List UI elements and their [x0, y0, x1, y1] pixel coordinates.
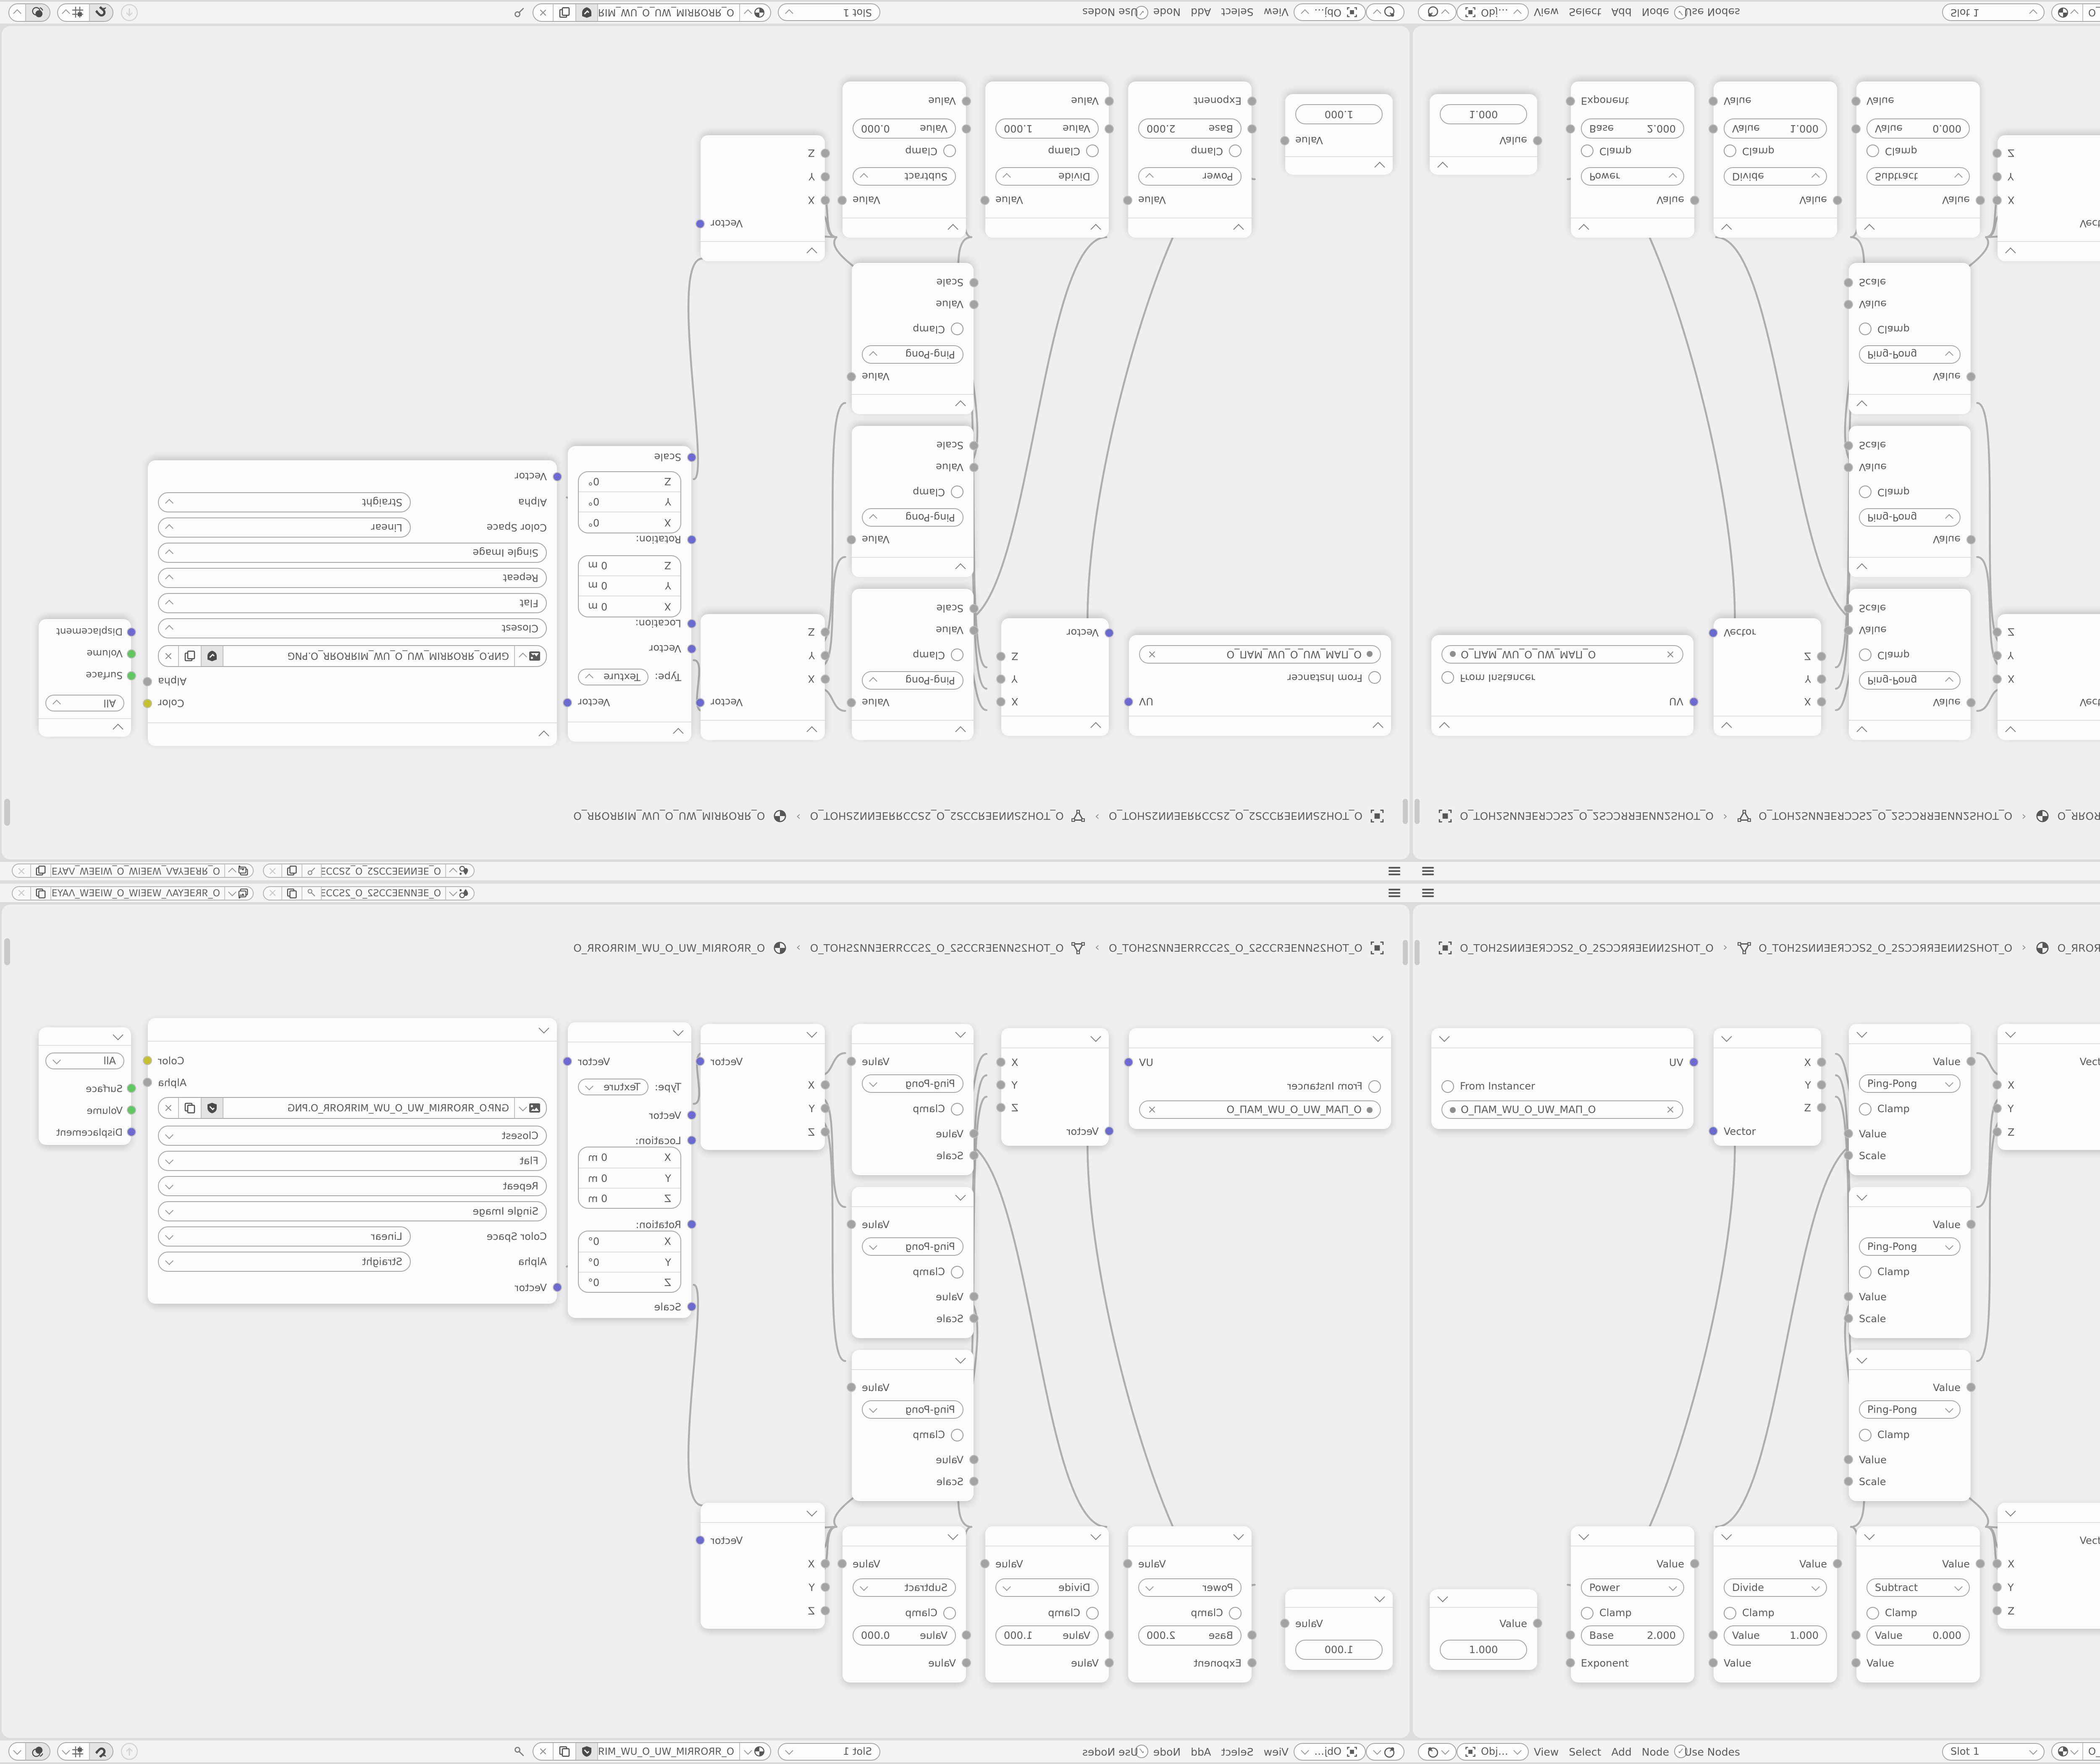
node-collapse-button[interactable] [1849, 1350, 1971, 1370]
node-collapse-button[interactable] [985, 218, 1109, 238]
breadcrumb-material[interactable]: O_ЯROЯRIM_WU_O_UW_MIЯROЯR_O [573, 941, 765, 954]
node-separate-xyz[interactable]: X Y Z Vector [1001, 618, 1109, 736]
menu-node[interactable]: Node [1148, 6, 1186, 19]
node-separate-xyz[interactable]: X Y Z Vector [1001, 1028, 1109, 1146]
z-input-socket[interactable] [1992, 149, 2002, 158]
number-field[interactable]: Base 2.000 [1581, 118, 1684, 139]
material-name-field[interactable]: O_ЯROЯRIM_WU_O_UW_MIЯROЯR_O [598, 4, 740, 21]
scale-input-socket[interactable] [1844, 278, 1853, 287]
operation-dropdown[interactable]: Power [1581, 167, 1684, 186]
value-input-socket[interactable] [1844, 1455, 1853, 1464]
x-output-socket[interactable] [1817, 1058, 1826, 1067]
remove-view-layer-button[interactable]: × [13, 865, 31, 877]
node-combine-xyz-top[interactable]: Vector X Y Z [701, 614, 825, 740]
node-math-pingpong-2[interactable]: Value Ping-Pong Clamp Value Scale [1849, 1187, 1971, 1338]
clamp-checkbox[interactable] [1859, 649, 1872, 661]
node-math-pingpong-3[interactable]: Value Ping-Pong Clamp Value Scale [852, 1350, 974, 1501]
new-material-button[interactable] [554, 1743, 576, 1760]
view-layer-browse-button[interactable] [225, 865, 253, 877]
breadcrumb-material[interactable]: O_ЯROЯRIM_WU_O_UW_MIЯROЯR_O [2058, 810, 2100, 823]
value-input-socket[interactable] [969, 300, 979, 309]
clamp-checkbox[interactable] [1724, 145, 1736, 157]
y-input-socket[interactable] [821, 651, 830, 660]
location-xyz-fields[interactable]: X0 m Y0 m Z0 m [578, 1147, 681, 1209]
breadcrumb-mesh[interactable]: O_TOH2SИИƎEЯƆƆS2_O_2SƆƆЯЯƎEИИ2SHOT_O [1759, 810, 2012, 823]
unlink-image-button[interactable]: × [159, 1098, 179, 1118]
rotation-y-field[interactable]: Y0° [579, 492, 680, 512]
uv-output-socket[interactable] [1124, 1058, 1133, 1067]
node-math-pingpong-3[interactable]: Value Ping-Pong Clamp Value Scale [852, 263, 974, 414]
new-scene-button[interactable] [282, 865, 302, 877]
uv-map-name-field[interactable]: O_ΠAM_WU_O_UW_MAΠ_O × [1139, 1100, 1381, 1119]
value-output-socket[interactable] [1280, 136, 1289, 145]
number-field[interactable]: Value 0.000 [1866, 118, 1970, 139]
value-input-socket[interactable] [1844, 300, 1853, 309]
image-browse-button[interactable] [515, 646, 546, 666]
node-collapse-button[interactable] [1849, 557, 1971, 577]
node-value[interactable]: Value 1.000 [1430, 94, 1537, 175]
value-output-socket[interactable] [1280, 1619, 1289, 1628]
node-image-texture[interactable]: Color Alpha GИP.O_ЯROЯRIM_WU_O_UW_MIЯROЯ… [148, 460, 557, 746]
number-field[interactable]: Value 1.000 [995, 1625, 1099, 1646]
clamp-checkbox[interactable] [1086, 145, 1099, 157]
operation-dropdown[interactable]: Ping-Pong [862, 508, 963, 527]
x-input-socket[interactable] [1992, 675, 2002, 684]
scale-input-socket[interactable] [1844, 604, 1853, 613]
vector-output-socket[interactable] [696, 1536, 705, 1545]
x-input-socket[interactable] [821, 1559, 830, 1568]
node-math-power[interactable]: Value Power Clamp Base 2.000 Exponent [1571, 1526, 1694, 1683]
clamp-checkbox[interactable] [1581, 145, 1593, 157]
horizontal-scrollbar[interactable] [1403, 940, 1408, 965]
second-input-socket[interactable] [1566, 97, 1575, 106]
value-output-socket[interactable] [847, 1057, 856, 1066]
interpolation-dropdown[interactable]: Closest [158, 1126, 547, 1146]
operation-dropdown[interactable]: Subtract [853, 167, 956, 186]
menu-select[interactable]: Select [1564, 1745, 1606, 1758]
new-image-button[interactable] [179, 646, 202, 666]
value-input-socket[interactable] [1844, 1129, 1853, 1138]
operation-dropdown[interactable]: Ping-Pong [862, 671, 963, 690]
image-datablock-selector[interactable]: GИP.O_ЯROЯRIM_WU_O_UW_MIЯROЯR_O.PNG × [158, 1097, 547, 1119]
node-collapse-button[interactable] [1998, 241, 2100, 261]
number-field[interactable]: Value 0.000 [853, 118, 956, 139]
material-browse-button[interactable] [2052, 4, 2082, 21]
node-math-pingpong-3[interactable]: Value Ping-Pong Clamp Value Scale [1849, 263, 1971, 414]
node-collapse-button[interactable] [1849, 394, 1971, 414]
scale-input-socket[interactable] [1844, 1314, 1853, 1323]
menu-add[interactable]: Add [1186, 1745, 1216, 1758]
node-uv-map[interactable]: UV From Instancer O_ΠAM_WU_O_UW_MAΠ_O × [1431, 635, 1693, 736]
node-collapse-button[interactable] [1714, 1028, 1821, 1048]
new-material-button[interactable] [554, 4, 576, 21]
value-output-socket[interactable] [847, 698, 856, 707]
clamp-checkbox[interactable] [1866, 1606, 1879, 1619]
menu-view[interactable]: View [1259, 1745, 1294, 1758]
node-editor-viewport[interactable]: O_TOH2SИИƎEЯƆƆS2_O_2SƆƆЯЯƎEИИ2SHOT_O › O… [1413, 905, 2100, 1738]
vector-input-socket[interactable] [687, 644, 696, 654]
shader-type-dropdown[interactable]: Object [1294, 4, 1366, 21]
rotation-y-field[interactable]: Y0° [579, 1252, 680, 1272]
node-combine-xyz-bottom[interactable]: Vector X Y Z [1998, 1503, 2100, 1629]
node-combine-xyz-bottom[interactable]: Vector X Y Z [701, 135, 825, 261]
operation-dropdown[interactable]: Power [1581, 1578, 1684, 1597]
z-output-socket[interactable] [996, 652, 1005, 661]
menu-add[interactable]: Add [1606, 6, 1636, 19]
node-collapse-button[interactable] [1998, 1503, 2100, 1523]
breadcrumb-material[interactable]: O_ЯROЯRIM_WU_O_UW_MIЯROЯR_O [2058, 941, 2100, 954]
value-output-socket[interactable] [1833, 1559, 1842, 1568]
material-browse-button[interactable] [2052, 1743, 2082, 1760]
node-math-pingpong-3[interactable]: Value Ping-Pong Clamp Value Scale [1849, 1350, 1971, 1501]
number-field[interactable]: Base 2.000 [1138, 118, 1242, 139]
vector-output-socket[interactable] [563, 698, 572, 707]
value-output-socket[interactable] [837, 1559, 847, 1568]
location-y-field[interactable]: Y0 m [579, 576, 680, 596]
node-collapse-button[interactable] [39, 1027, 131, 1046]
node-value[interactable]: Value 1.000 [1430, 1589, 1537, 1670]
node-math-pingpong-2[interactable]: Value Ping-Pong Clamp Value Scale [1849, 426, 1971, 577]
pin-scene-button[interactable] [302, 887, 322, 899]
rotation-input-socket[interactable] [687, 535, 696, 544]
clamp-checkbox[interactable] [1859, 1265, 1872, 1278]
menu-add[interactable]: Add [1186, 6, 1216, 19]
second-input-socket[interactable] [1851, 1658, 1861, 1667]
node-collapse-button[interactable] [1571, 1526, 1694, 1546]
x-output-socket[interactable] [996, 1058, 1005, 1067]
value-output-socket[interactable] [1123, 196, 1132, 205]
node-collapse-button[interactable] [852, 1350, 974, 1370]
node-collapse-button[interactable] [1998, 1024, 2100, 1044]
clamp-checkbox[interactable] [943, 1606, 956, 1619]
node-mapping[interactable]: Vector Type: Texture Vector Location: X0… [568, 446, 691, 742]
second-input-socket[interactable] [1105, 1658, 1114, 1667]
number-field[interactable]: Value 1.000 [995, 118, 1099, 139]
second-input-socket[interactable] [962, 97, 971, 106]
rotation-xyz-fields[interactable]: X0° Y0° Z0° [578, 471, 681, 533]
node-collapse-button[interactable] [1128, 218, 1252, 238]
node-collapse-button[interactable] [1849, 1024, 1971, 1044]
value-field[interactable]: 1.000 [1440, 104, 1527, 124]
z-output-socket[interactable] [1817, 1103, 1826, 1112]
number-field[interactable]: Base 2.000 [1581, 1625, 1684, 1646]
node-math-pingpong-1[interactable]: Value Ping-Pong Clamp Value Scale [852, 589, 974, 740]
clamp-checkbox[interactable] [1859, 323, 1872, 336]
uv-output-socket[interactable] [1124, 697, 1133, 706]
node-uv-map[interactable]: UV From Instancer O_ΠAM_WU_O_UW_MAΠ_O × [1129, 1028, 1391, 1129]
node-collapse-button[interactable] [1128, 1526, 1252, 1546]
node-collapse-button[interactable] [852, 557, 974, 577]
value-field[interactable]: 1.000 [1295, 104, 1383, 124]
operation-dropdown[interactable]: Power [1138, 1578, 1242, 1597]
scale-input-socket[interactable] [969, 1314, 979, 1323]
second-input-socket[interactable] [1709, 1658, 1718, 1667]
operation-dropdown[interactable]: Ping-Pong [862, 1074, 963, 1093]
field-input-socket[interactable] [1247, 124, 1257, 134]
node-math-pingpong-2[interactable]: Value Ping-Pong Clamp Value Scale [852, 1187, 974, 1338]
breadcrumb-mesh[interactable]: O_TOH2SИИƎEЯƆƆS2_O_2SƆƆЯЯƎEИИ2SHOT_O [810, 941, 1064, 954]
source-dropdown[interactable]: Single Image [158, 1201, 547, 1221]
material-datablock-selector[interactable]: O_ЯROЯRIM_WU_O_UW_MIЯROЯR_O × [533, 3, 771, 22]
value-output-socket[interactable] [1976, 196, 1985, 205]
node-math-divide[interactable]: Value Divide Clamp Value 1.000 Value [985, 1526, 1109, 1683]
scale-input-socket[interactable] [1844, 441, 1853, 450]
operation-dropdown[interactable]: Ping-Pong [1859, 508, 1961, 527]
breadcrumb-material[interactable]: O_ЯROЯRIM_WU_O_UW_MIЯROЯR_O [573, 810, 765, 823]
node-editor-viewport[interactable]: O_TOH2SИИƎEЯƆƆS2_O_2SƆƆЯЯƎEИИ2SHOT_O › O… [2, 26, 1410, 859]
z-input-socket[interactable] [1992, 627, 2002, 637]
material-datablock-selector[interactable]: O_ЯROЯRIM_WU_O_UW_MIЯROЯR_O × [2051, 1742, 2100, 1761]
node-separate-xyz[interactable]: X Y Z Vector [1714, 1028, 1821, 1146]
value-input-socket[interactable] [969, 626, 979, 635]
color-space-dropdown[interactable]: Linear [158, 1226, 411, 1247]
field-input-socket[interactable] [1105, 1630, 1114, 1640]
field-input-socket[interactable] [1105, 124, 1114, 134]
location-x-field[interactable]: X0 m [579, 1147, 680, 1168]
x-input-socket[interactable] [821, 1080, 830, 1089]
editor-type-selector[interactable] [1418, 1743, 1457, 1760]
x-input-socket[interactable] [821, 196, 830, 205]
node-combine-xyz-top[interactable]: Vector X Y Z [1998, 1024, 2100, 1150]
vector-input-socket[interactable] [1709, 1126, 1718, 1136]
slot-dropdown[interactable]: Slot 1 [1942, 1743, 2045, 1760]
node-collapse-button[interactable] [1856, 1526, 1980, 1546]
vector-output-socket[interactable] [696, 698, 705, 707]
projection-dropdown[interactable]: Flat [158, 1151, 547, 1171]
material-name-field[interactable]: O_ЯROЯRIM_WU_O_UW_MIЯROЯR_O [598, 1743, 740, 1760]
surface-input-socket[interactable] [127, 1084, 136, 1093]
location-x-field[interactable]: X0 m [579, 596, 680, 617]
value-output-socket[interactable] [1533, 136, 1542, 145]
unlink-image-button[interactable]: × [159, 646, 179, 666]
node-combine-xyz-top[interactable]: Vector X Y Z [1998, 614, 2100, 740]
scale-input-socket[interactable] [1844, 1477, 1853, 1486]
node-collapse-button[interactable] [1285, 1589, 1393, 1608]
node-collapse-button[interactable] [852, 1187, 974, 1207]
node-collapse-button[interactable] [1714, 1526, 1837, 1546]
x-output-socket[interactable] [1817, 697, 1826, 706]
clear-uv-button[interactable]: × [1666, 649, 1675, 660]
value-output-socket[interactable] [1966, 1383, 1976, 1392]
fake-user-toggle[interactable] [576, 1743, 598, 1760]
value-output-socket[interactable] [1966, 1057, 1976, 1066]
number-field[interactable]: Value 1.000 [1724, 118, 1827, 139]
z-input-socket[interactable] [821, 1127, 830, 1137]
clear-uv-button[interactable]: × [1147, 649, 1157, 660]
x-input-socket[interactable] [821, 675, 830, 684]
image-browse-button[interactable] [515, 1098, 546, 1118]
breadcrumb-object[interactable]: O_TOH2SИИƎEЯƆƆS2_O_2SƆƆЯЯƎEИИ2SHOT_O [1109, 810, 1362, 823]
value-output-socket[interactable] [980, 196, 990, 205]
value-input-socket[interactable] [969, 1129, 979, 1138]
collapsed-menus-hamburger-icon[interactable] [1388, 865, 1401, 877]
z-output-socket[interactable] [996, 1103, 1005, 1112]
scene-selector[interactable]: O_ƎEИИƎEƆƆЅ2_O_2ЅƆƆƎИ… × [263, 864, 475, 878]
from-instancer-checkbox[interactable] [1368, 672, 1381, 684]
unlink-scene-button[interactable]: × [264, 865, 282, 877]
node-collapse-button[interactable] [148, 722, 557, 746]
uv-output-socket[interactable] [1689, 697, 1698, 706]
node-collapse-button[interactable] [1849, 720, 1971, 740]
rotation-xyz-fields[interactable]: X0° Y0° Z0° [578, 1231, 681, 1293]
operation-dropdown[interactable]: Ping-Pong [1859, 1400, 1961, 1419]
operation-dropdown[interactable]: Subtract [1866, 1578, 1970, 1597]
x-input-socket[interactable] [1992, 196, 2002, 205]
node-math-divide[interactable]: Value Divide Clamp Value 1.000 Value [1714, 81, 1837, 238]
node-collapse-button[interactable] [852, 1024, 974, 1044]
view-layer-selector[interactable]: O_ЯRƎEYAΛ_WƎEIW_O_WIƎEW_ΛAYƎEЯR_O × [12, 864, 254, 878]
clamp-checkbox[interactable] [1859, 486, 1872, 499]
clamp-checkbox[interactable] [1229, 1606, 1242, 1619]
value-output-socket[interactable] [847, 372, 856, 381]
node-collapse-button[interactable] [1430, 1589, 1537, 1608]
breadcrumb-object[interactable]: O_TOH2SИИƎEЯƆƆS2_O_2SƆƆЯЯƎEИИ2SHOT_O [1109, 941, 1362, 954]
second-input-socket[interactable] [1566, 1658, 1575, 1667]
y-output-socket[interactable] [996, 1080, 1005, 1089]
node-value[interactable]: Value 1.000 [1285, 1589, 1393, 1670]
mapping-type-dropdown[interactable]: Texture [578, 669, 649, 685]
clamp-checkbox[interactable] [943, 145, 956, 157]
x-input-socket[interactable] [1992, 1559, 2002, 1568]
breadcrumb-mesh[interactable]: O_TOH2SИИƎEЯƆƆS2_O_2SƆƆЯЯƎEИИ2SHOT_O [1759, 941, 2012, 954]
node-collapse-button[interactable] [1856, 218, 1980, 238]
material-name-field[interactable]: O_ЯROЯRIM_WU_O_UW_MIЯROЯR_O [2082, 1743, 2100, 1760]
scale-input-socket[interactable] [969, 604, 979, 613]
z-output-socket[interactable] [1817, 652, 1826, 661]
vector-output-socket[interactable] [563, 1057, 572, 1066]
unlink-material-button[interactable]: × [533, 4, 554, 21]
vector-output-socket[interactable] [696, 1057, 705, 1066]
node-collapse-button[interactable] [1714, 716, 1821, 736]
clamp-checkbox[interactable] [1724, 1606, 1736, 1619]
node-collapse-button[interactable] [1129, 716, 1391, 736]
clamp-checkbox[interactable] [951, 1428, 963, 1441]
node-collapse-button[interactable] [852, 394, 974, 414]
overlays-dropdown[interactable] [9, 4, 26, 21]
z-input-socket[interactable] [821, 627, 830, 637]
rotation-input-socket[interactable] [687, 1220, 696, 1229]
uv-map-name-field[interactable]: O_ΠAM_WU_O_UW_MAΠ_O × [1441, 1100, 1683, 1119]
horizontal-scrollbar[interactable] [1403, 799, 1408, 824]
clamp-checkbox[interactable] [951, 1265, 963, 1278]
clamp-checkbox[interactable] [1859, 1102, 1872, 1115]
clear-uv-button[interactable]: × [1666, 1104, 1675, 1115]
node-value[interactable]: Value 1.000 [1285, 94, 1393, 175]
clamp-checkbox[interactable] [1859, 1428, 1872, 1441]
color-output-socket[interactable] [143, 1056, 152, 1065]
y-output-socket[interactable] [1817, 675, 1826, 684]
menu-view[interactable]: View [1529, 6, 1564, 19]
value-output-socket[interactable] [837, 196, 847, 205]
slot-dropdown[interactable]: Slot 1 [1942, 4, 2045, 21]
value-output-socket[interactable] [1690, 1559, 1699, 1568]
menu-select[interactable]: Select [1216, 1745, 1259, 1758]
material-datablock-selector[interactable]: O_ЯROЯRIM_WU_O_UW_MIЯROЯR_O × [533, 1742, 771, 1761]
scale-input-socket[interactable] [969, 1477, 979, 1486]
image-filename-field[interactable]: GИP.O_ЯROЯRIM_WU_O_UW_MIЯROЯR_O.PNG [223, 646, 515, 666]
scene-name-field[interactable]: O_ƎEИИƎEƆƆЅ2_O_2ЅƆƆƎИ… [322, 887, 446, 899]
scene-name-field[interactable]: O_ƎEИИƎEƆƆЅ2_O_2ЅƆƆƎИ… [322, 865, 446, 877]
shader-type-dropdown[interactable]: Object [1294, 1743, 1366, 1760]
field-input-socket[interactable] [1247, 1630, 1257, 1640]
location-y-field[interactable]: Y0 m [579, 1168, 680, 1188]
node-collapse-button[interactable] [39, 718, 131, 737]
collapsed-menus-hamburger-icon[interactable] [1421, 865, 1435, 877]
breadcrumb-object[interactable]: O_TOH2SИИƎEЯƆƆS2_O_2SƆƆЯЯƎEИИ2SHOT_O [1460, 941, 1714, 954]
collapsed-menus-hamburger-icon[interactable] [1388, 887, 1401, 899]
node-editor-viewport[interactable]: O_TOH2SИИƎEЯƆƆS2_O_2SƆƆЯЯƎEИИ2SHOT_O › O… [2, 905, 1410, 1738]
operation-dropdown[interactable]: Divide [1724, 1578, 1827, 1597]
alpha-mode-dropdown[interactable]: Straight [158, 492, 411, 512]
source-dropdown[interactable]: Single Image [158, 543, 547, 563]
second-input-socket[interactable] [1247, 97, 1257, 106]
projection-dropdown[interactable]: Flat [158, 593, 547, 613]
image-filename-field[interactable]: GИP.O_ЯROЯRIM_WU_O_UW_MIЯROЯR_O.PNG [223, 1098, 515, 1118]
vector-input-socket[interactable] [553, 1283, 562, 1292]
node-collapse-button[interactable] [1430, 156, 1537, 175]
displacement-input-socket[interactable] [127, 627, 136, 637]
rotation-z-field[interactable]: Z0° [579, 1272, 680, 1292]
menu-view[interactable]: View [1529, 1745, 1564, 1758]
menu-node[interactable]: Node [1637, 6, 1674, 19]
extension-dropdown[interactable]: Repeat [158, 568, 547, 588]
uv-output-socket[interactable] [1689, 1058, 1698, 1067]
view-layer-browse-button[interactable] [225, 887, 253, 899]
node-math-subtract[interactable]: Value Subtract Clamp Value 0.000 Value [1856, 81, 1980, 238]
unlink-scene-button[interactable]: × [264, 887, 282, 899]
displacement-input-socket[interactable] [127, 1127, 136, 1137]
field-input-socket[interactable] [962, 1630, 971, 1640]
new-view-layer-button[interactable] [31, 887, 51, 899]
y-output-socket[interactable] [996, 675, 1005, 684]
vector-input-socket[interactable] [1105, 1126, 1114, 1136]
pin-icon[interactable] [513, 1745, 526, 1758]
vector-input-socket[interactable] [687, 1110, 696, 1120]
node-editor-viewport[interactable]: O_TOH2SИИƎEЯƆƆS2_O_2SƆƆЯЯƎEИИ2SHOT_O › O… [1413, 26, 2100, 859]
y-input-socket[interactable] [821, 1104, 830, 1113]
node-mapping[interactable]: Vector Type: Texture Vector Location: X0… [568, 1022, 691, 1318]
node-collapse-button[interactable] [568, 722, 691, 742]
from-instancer-checkbox[interactable] [1441, 672, 1454, 684]
node-collapse-button[interactable] [1285, 156, 1393, 175]
node-collapse-button[interactable] [843, 1526, 966, 1546]
location-xyz-fields[interactable]: X0 m Y0 m Z0 m [578, 555, 681, 617]
operation-dropdown[interactable]: Ping-Pong [1859, 1074, 1961, 1093]
scale-input-socket[interactable] [969, 441, 979, 450]
node-uv-map[interactable]: UV From Instancer O_ΠAM_WU_O_UW_MAΠ_O × [1129, 635, 1391, 736]
operation-dropdown[interactable]: Ping-Pong [1859, 345, 1961, 364]
node-image-texture[interactable]: Color Alpha GИP.O_ЯROЯRIM_WU_O_UW_MIЯROЯ… [148, 1018, 557, 1304]
collapsed-menus-hamburger-icon[interactable] [1421, 887, 1435, 899]
scale-input-socket[interactable] [1844, 1151, 1853, 1160]
field-input-socket[interactable] [1566, 1630, 1575, 1640]
uv-map-name-field[interactable]: O_ΠAM_WU_O_UW_MAΠ_O × [1139, 645, 1381, 664]
value-output-socket[interactable] [1976, 1559, 1985, 1568]
alpha-output-socket[interactable] [143, 677, 152, 686]
fake-user-toggle[interactable] [576, 4, 598, 21]
menu-view[interactable]: View [1259, 6, 1294, 19]
vector-input-socket[interactable] [553, 472, 562, 481]
node-collapse-button[interactable] [148, 1018, 557, 1042]
snap-toggle[interactable] [90, 1743, 113, 1760]
scale-input-socket[interactable] [687, 1302, 696, 1311]
clamp-checkbox[interactable] [1229, 145, 1242, 157]
node-collapse-button[interactable] [1001, 716, 1109, 736]
clamp-checkbox[interactable] [951, 486, 963, 499]
operation-dropdown[interactable]: Ping-Pong [1859, 1237, 1961, 1256]
scene-browse-button[interactable] [446, 887, 474, 899]
breadcrumb-object[interactable]: O_TOH2SИИƎEЯƆƆS2_O_2SƆƆЯЯƎEИИ2SHOT_O [1460, 810, 1714, 823]
